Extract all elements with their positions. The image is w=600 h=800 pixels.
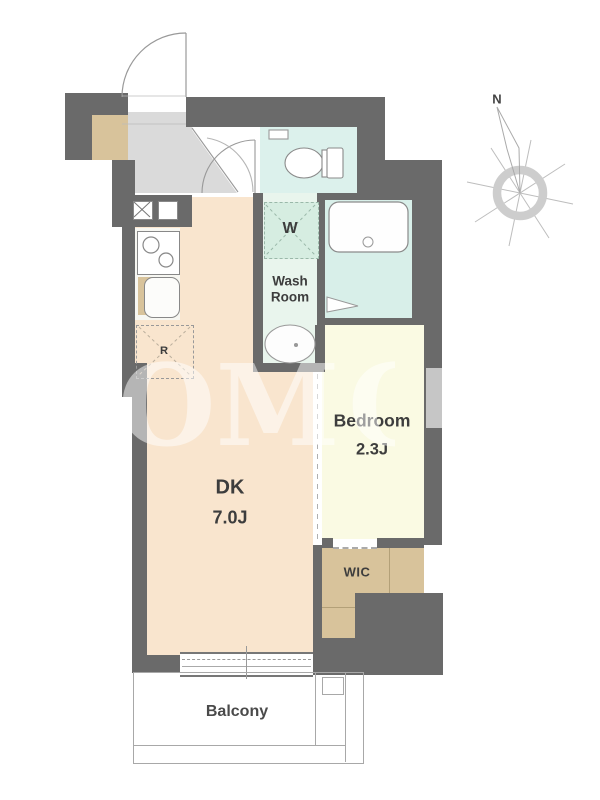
wall-left-upper (112, 160, 135, 197)
balcony-small-box (322, 677, 344, 695)
balcony-inner-line (134, 745, 345, 746)
washroom-label-line1: Wash (272, 274, 308, 289)
wall-right-bath (412, 200, 442, 325)
entrance-door (122, 33, 186, 124)
dk-room-size: 7.0J (212, 508, 247, 529)
meter-box (133, 201, 153, 220)
wic-door-dashed-strip (333, 539, 377, 549)
wic-label: WIC (344, 565, 371, 580)
washer-space-label: W (282, 220, 297, 238)
bedroom-window (426, 368, 442, 428)
wall-dk-right-lower (313, 545, 322, 675)
wall-bottom-left-corner (132, 655, 180, 673)
bathroom-floor (325, 197, 412, 318)
floorplan-canvas: N W Wash Room R DK 7.0J Bedroom 2.3J WIC… (0, 0, 600, 800)
wic-divider-horizontal (322, 607, 355, 608)
balcony-label: Balcony (206, 703, 268, 721)
wall-toilet-right-column (357, 97, 385, 163)
compass-rose (467, 107, 573, 246)
wall-wic-top-right (377, 538, 424, 548)
watermark-partial-letter: O (348, 348, 395, 466)
shoe-cabinet (92, 115, 128, 160)
watermark-text: OM (118, 348, 340, 466)
entrance-floor (125, 112, 192, 193)
wic-floor-main (322, 548, 424, 597)
washroom-label-line2: Room (271, 290, 309, 305)
stove (137, 231, 180, 275)
dk-room-label: DK (216, 477, 245, 500)
wall-washroom-left (253, 193, 263, 372)
toilet-floor (260, 127, 357, 195)
wall-wic-nub (322, 538, 333, 548)
balcony-divider-left (315, 673, 316, 745)
entrance-floor-diagonal (192, 130, 237, 193)
watermark: OM O (100, 348, 395, 468)
wall-bottom-right-mass (355, 593, 443, 675)
compass-north-label: N (492, 92, 501, 107)
pipe-space-box (158, 201, 178, 220)
compass-needle (497, 107, 520, 193)
sink (144, 277, 180, 318)
wic-floor-leg (322, 597, 355, 638)
wall-bath-bottom (317, 318, 412, 325)
balcony-divider-right (345, 672, 346, 762)
wall-left-kitchen (122, 227, 135, 363)
wall-bath-top-strip (325, 193, 442, 200)
wic-divider-vertical (389, 548, 390, 597)
wall-right-bedroom (424, 325, 442, 545)
wall-top (186, 97, 385, 127)
wall-below-wic-leg (322, 638, 355, 675)
